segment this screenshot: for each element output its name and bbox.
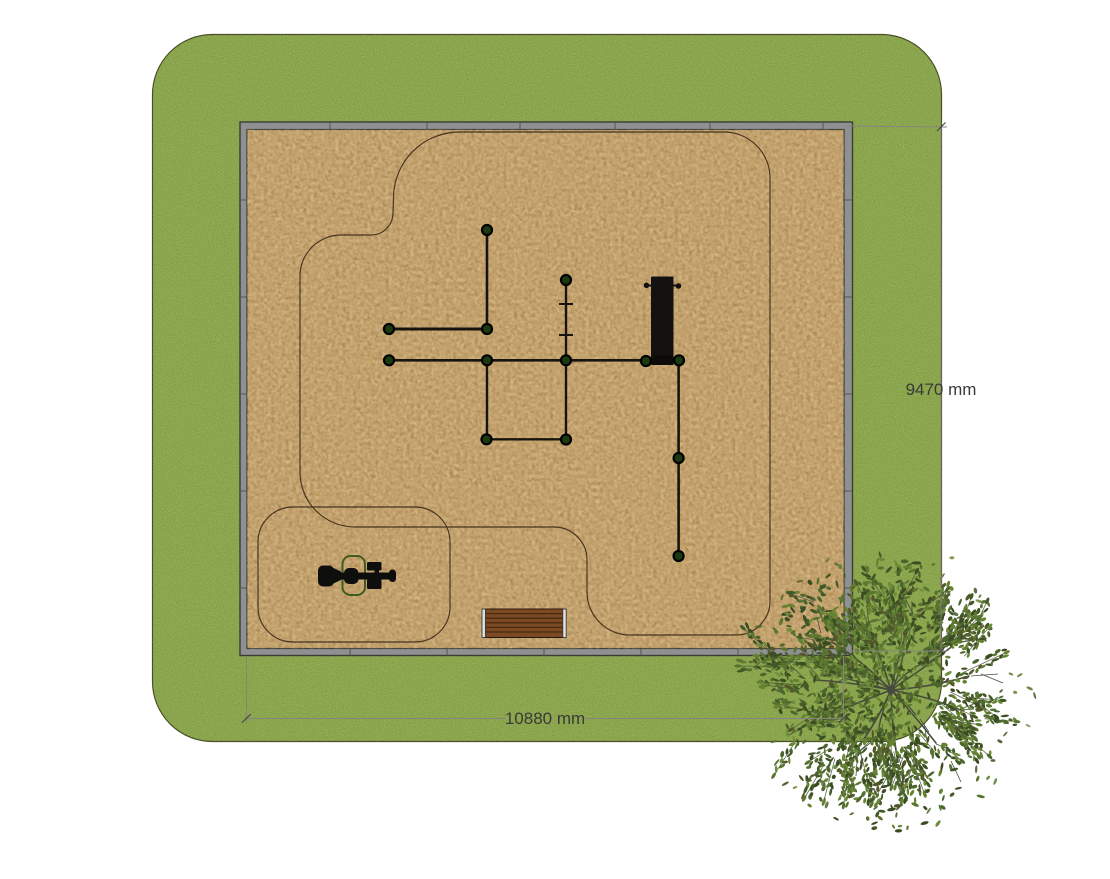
svg-text:9470 mm: 9470 mm (906, 380, 977, 399)
svg-text:10880 mm: 10880 mm (505, 709, 585, 728)
